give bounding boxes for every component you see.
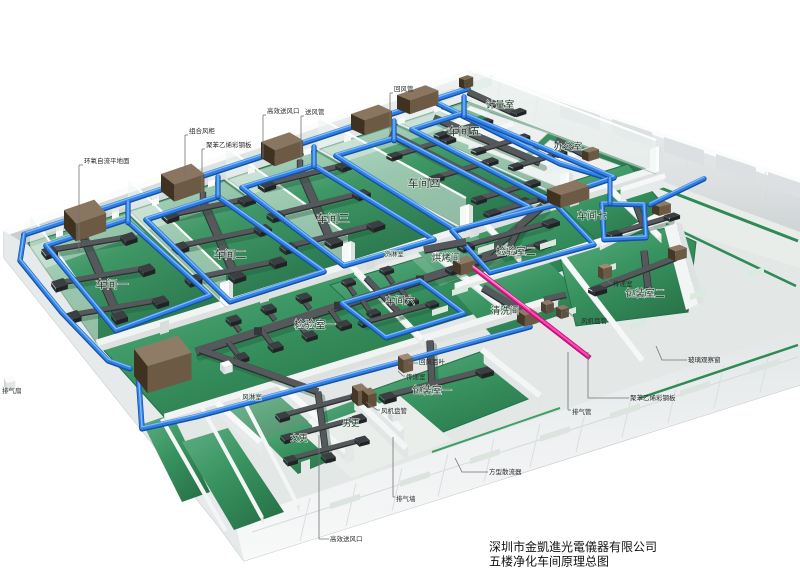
svg-text:排气管: 排气管 xyxy=(572,407,592,416)
svg-text:清洗间: 清洗间 xyxy=(491,305,520,317)
svg-text:排气墙: 排气墙 xyxy=(396,494,416,503)
svg-text:女更: 女更 xyxy=(290,433,308,443)
svg-text:车间一: 车间一 xyxy=(96,277,129,291)
svg-text:烘烤间: 烘烤间 xyxy=(432,252,461,264)
svg-text:聚苯乙烯彩钢板: 聚苯乙烯彩钢板 xyxy=(630,393,676,402)
svg-text:风机盘管: 风机盘管 xyxy=(581,316,608,325)
svg-text:排气扇: 排气扇 xyxy=(2,386,22,395)
svg-text:风机盘管: 风机盘管 xyxy=(381,406,408,415)
svg-text:车间三: 车间三 xyxy=(317,211,350,225)
svg-text:检验室二: 检验室二 xyxy=(496,245,536,258)
svg-text:包装室二: 包装室二 xyxy=(625,287,665,300)
svg-text:聚苯乙烯彩钢板: 聚苯乙烯彩钢板 xyxy=(206,140,252,149)
svg-text:检验室一: 检验室一 xyxy=(294,318,336,331)
svg-text:车间七: 车间七 xyxy=(577,209,607,222)
svg-text:车间四: 车间四 xyxy=(408,176,441,190)
svg-text:送风管: 送风管 xyxy=(305,107,325,116)
svg-text:包装室一: 包装室一 xyxy=(412,384,452,397)
svg-text:车间五: 车间五 xyxy=(448,124,481,138)
svg-text:传递室: 传递室 xyxy=(406,372,426,381)
svg-text:车间六: 车间六 xyxy=(385,294,415,307)
svg-text:风淋室: 风淋室 xyxy=(242,392,262,401)
svg-text:回风百叶: 回风百叶 xyxy=(419,357,446,366)
svg-text:组合风柜: 组合风柜 xyxy=(189,126,216,135)
svg-text:回风管: 回风管 xyxy=(394,84,414,93)
svg-text:计量室: 计量室 xyxy=(486,99,515,111)
svg-text:方型散流器: 方型散流器 xyxy=(489,467,522,476)
svg-text:深圳市金凱進光電儀器有限公司: 深圳市金凱進光電儀器有限公司 xyxy=(489,539,657,554)
svg-text:男更: 男更 xyxy=(342,418,360,428)
svg-text:高效送风口: 高效送风口 xyxy=(267,106,300,115)
svg-text:办公室: 办公室 xyxy=(554,141,583,153)
svg-text:五楼净化车间原理总图: 五楼净化车间原理总图 xyxy=(489,554,609,569)
svg-text:高效送风口: 高效送风口 xyxy=(330,534,363,543)
svg-text:货淋室: 货淋室 xyxy=(384,249,404,258)
svg-text:环氧自流平地面: 环氧自流平地面 xyxy=(84,156,130,165)
svg-text:传递室: 传递室 xyxy=(613,279,633,288)
svg-text:玻璃观察窗: 玻璃观察窗 xyxy=(688,355,721,364)
svg-text:车间二: 车间二 xyxy=(214,247,247,261)
